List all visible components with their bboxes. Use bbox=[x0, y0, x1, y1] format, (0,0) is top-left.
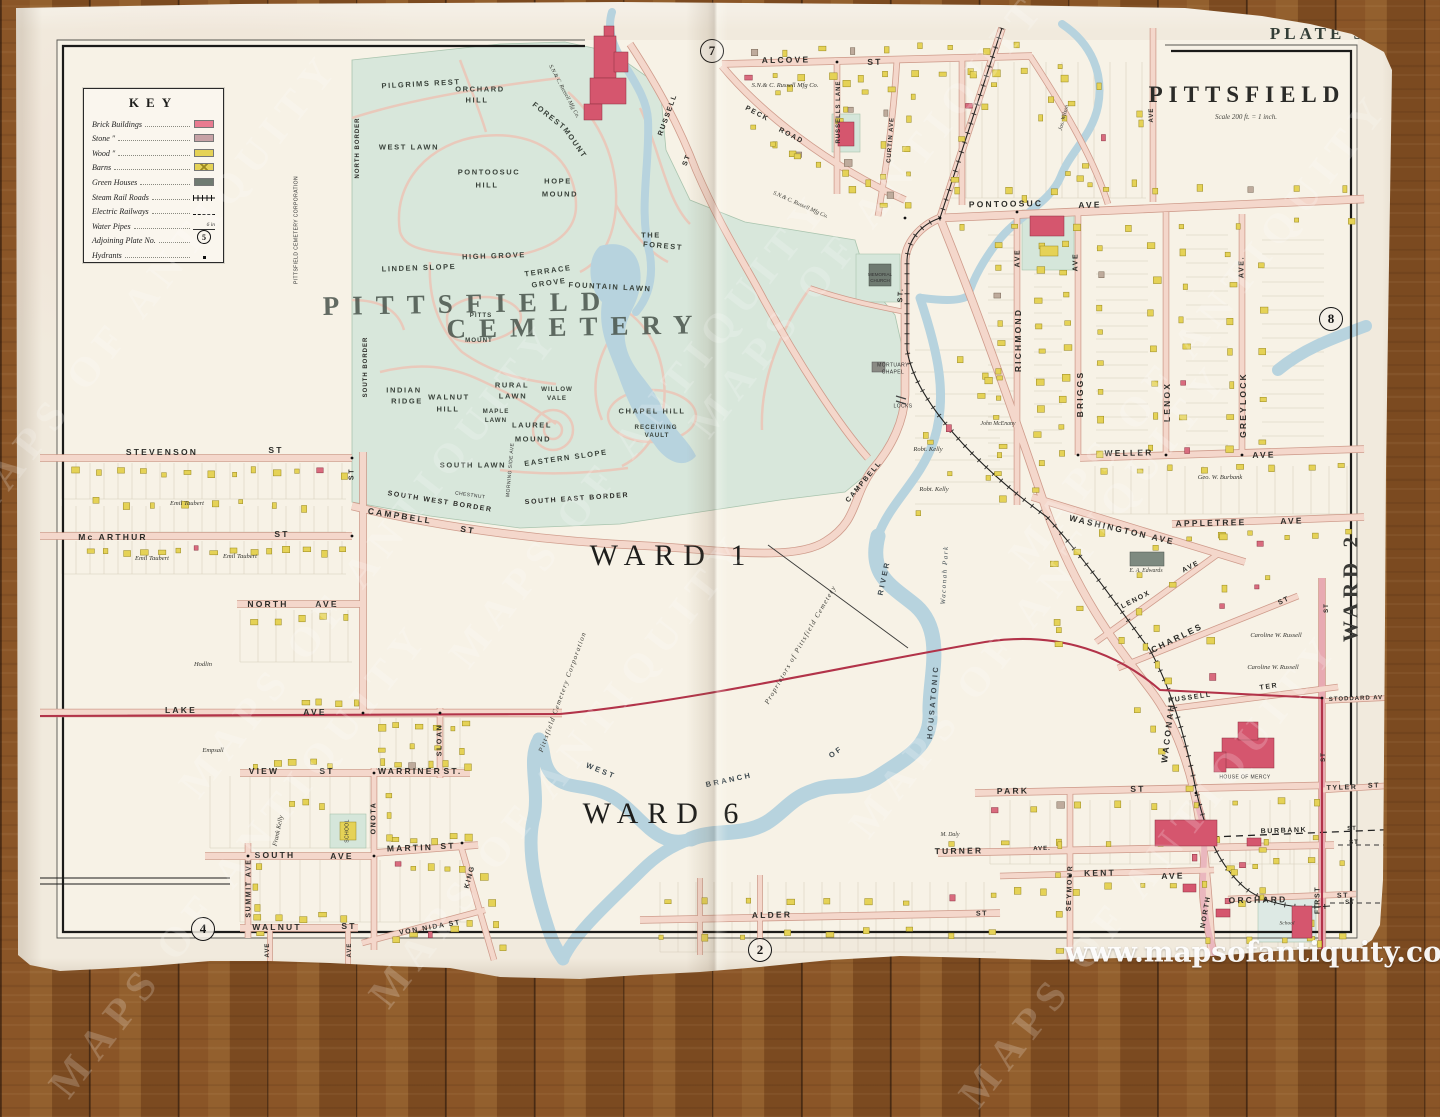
wood-swatch bbox=[194, 149, 214, 157]
key-item: Adjoining Plate No.5 bbox=[92, 231, 215, 246]
key-item: Wood ″ bbox=[92, 143, 215, 158]
hydrant-swatch bbox=[203, 256, 206, 259]
map-key: KEY Brick BuildingsStone ″Wood ″BarnsGre… bbox=[83, 88, 224, 263]
key-title: KEY bbox=[92, 95, 215, 111]
website-watermark: www.mapsofantiquity.com bbox=[1065, 936, 1440, 969]
rail-swatch bbox=[193, 195, 215, 201]
electric-swatch bbox=[193, 214, 215, 215]
greenhouse-swatch bbox=[194, 178, 214, 186]
stone-swatch bbox=[194, 134, 214, 142]
map-sheet-photo: STEVENSONSTMc ARTHURSTNORTHAVELAKEAVEVIE… bbox=[0, 0, 1440, 996]
adjoining-plate-4: 4 bbox=[191, 917, 215, 941]
key-item: Hydrants bbox=[92, 245, 215, 260]
adjoining-plate-2: 2 bbox=[748, 938, 772, 962]
barns-swatch bbox=[194, 163, 214, 171]
key-rows: Brick BuildingsStone ″Wood ″BarnsGreen H… bbox=[92, 114, 215, 260]
map-title: PITTSFIELD bbox=[1149, 82, 1346, 108]
plate-number-title: PLATE 5 bbox=[1270, 24, 1366, 44]
plate-swatch: 5 bbox=[197, 230, 211, 244]
key-item: Steam Rail Roads bbox=[92, 187, 215, 202]
adjoining-plate-8: 8 bbox=[1319, 307, 1343, 331]
map-scale-note: Scale 200 ft. = 1 inch. bbox=[1215, 113, 1277, 121]
key-item: Brick Buildings bbox=[92, 114, 215, 129]
brick-swatch bbox=[194, 120, 214, 128]
key-item: Electric Railways bbox=[92, 202, 215, 217]
key-item: Green Houses bbox=[92, 172, 215, 187]
key-item: Water Pipes6 in bbox=[92, 216, 215, 231]
adjoining-plate-7: 7 bbox=[700, 39, 724, 63]
water-swatch: 6 in bbox=[193, 229, 215, 230]
key-item: Barns bbox=[92, 158, 215, 173]
key-item: Stone ″ bbox=[92, 129, 215, 144]
